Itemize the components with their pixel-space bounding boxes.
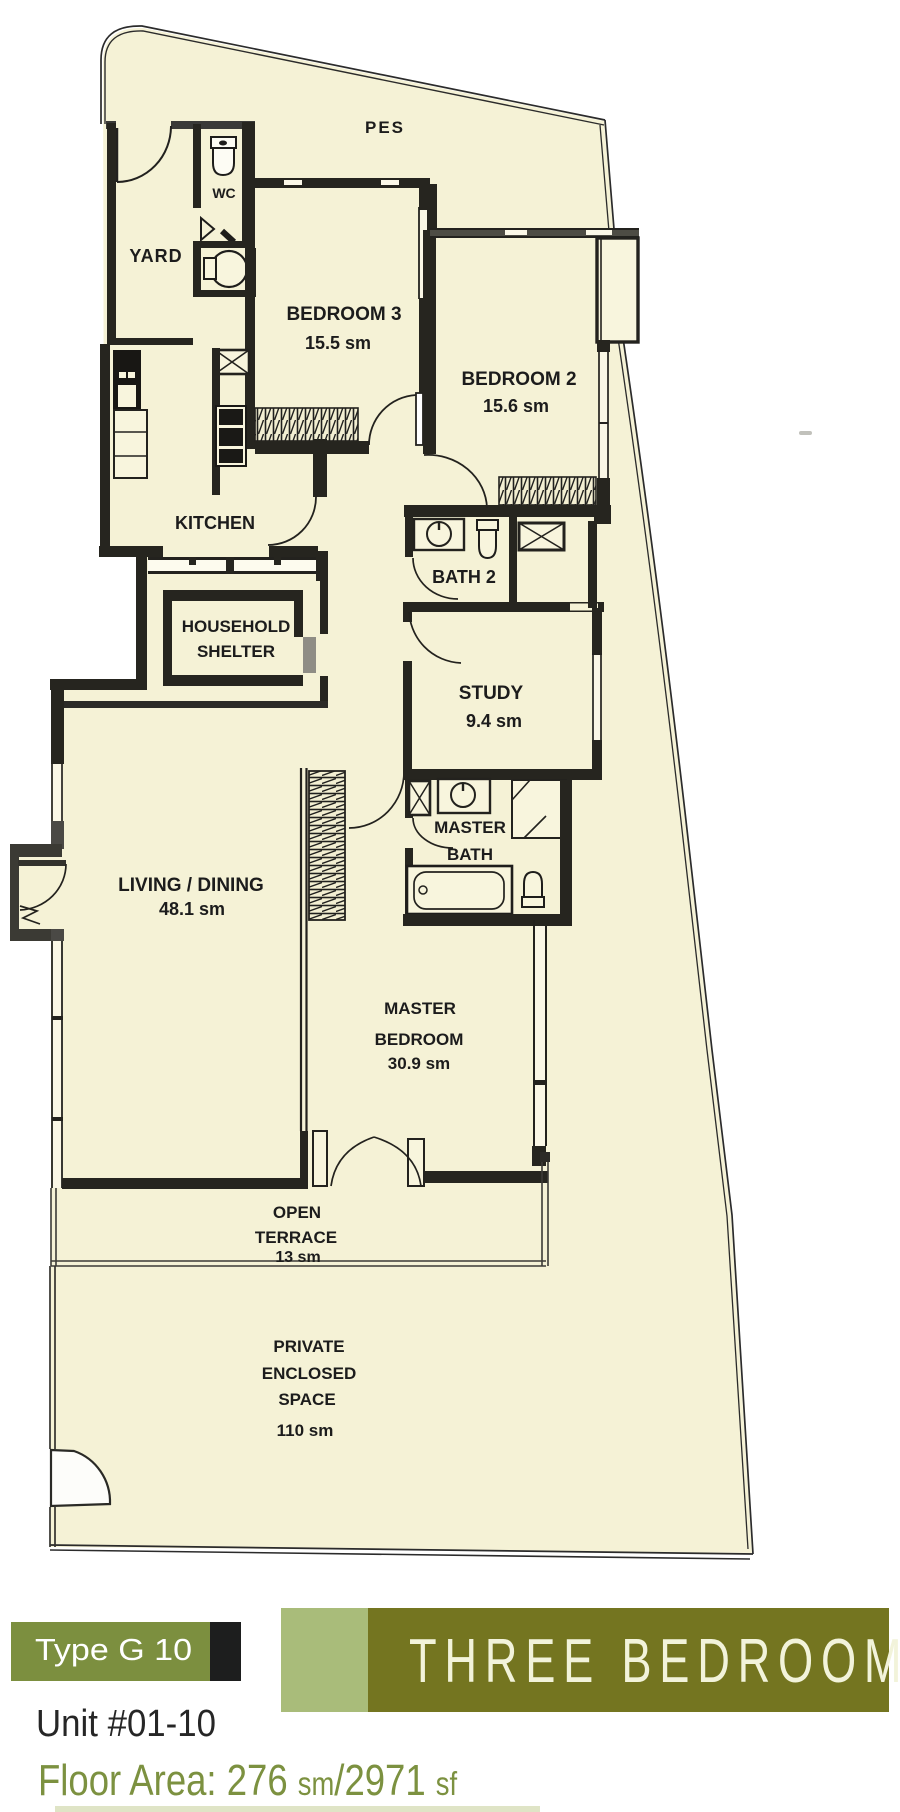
- svg-text:BATH: BATH: [447, 845, 493, 864]
- svg-text:Unit #01-10: Unit #01-10: [36, 1703, 216, 1745]
- svg-text:MASTER: MASTER: [434, 818, 506, 837]
- svg-text:OPEN: OPEN: [273, 1203, 321, 1222]
- svg-text:15.6 sm: 15.6 sm: [483, 396, 549, 416]
- svg-text:30.9 sm: 30.9 sm: [388, 1054, 450, 1073]
- svg-text:ENCLOSED: ENCLOSED: [262, 1364, 356, 1383]
- svg-text:LIVING / DINING: LIVING / DINING: [118, 875, 264, 896]
- svg-text:TERRACE: TERRACE: [255, 1228, 337, 1247]
- svg-text:MASTER: MASTER: [384, 999, 456, 1018]
- svg-text:PES: PES: [365, 118, 405, 137]
- svg-text:HOUSEHOLD: HOUSEHOLD: [182, 617, 291, 636]
- svg-text:Type G 10: Type G 10: [35, 1632, 192, 1667]
- svg-text:PRIVATE: PRIVATE: [273, 1337, 344, 1356]
- svg-text:THREE BEDROOM: THREE BEDROOM: [409, 1626, 900, 1696]
- svg-text:SHELTER: SHELTER: [197, 642, 275, 661]
- svg-text:15.5 sm: 15.5 sm: [305, 333, 371, 353]
- svg-text:9.4 sm: 9.4 sm: [466, 711, 522, 731]
- svg-text:BEDROOM 2: BEDROOM 2: [461, 369, 576, 390]
- svg-text:BATH 2: BATH 2: [432, 567, 496, 587]
- svg-text:BEDROOM 3: BEDROOM 3: [286, 304, 401, 325]
- svg-text:YARD: YARD: [129, 246, 182, 266]
- svg-text:48.1 sm: 48.1 sm: [159, 899, 225, 919]
- svg-text:SPACE: SPACE: [278, 1390, 335, 1409]
- svg-text:13 sm: 13 sm: [275, 1249, 320, 1266]
- svg-text:BEDROOM: BEDROOM: [375, 1030, 464, 1049]
- svg-text:KITCHEN: KITCHEN: [175, 513, 255, 533]
- svg-text:WC: WC: [212, 185, 235, 201]
- svg-text:STUDY: STUDY: [459, 683, 524, 704]
- svg-text:Floor Area: 276 sm/2971 sf: Floor Area: 276 sm/2971 sf: [38, 1755, 458, 1805]
- svg-text:110 sm: 110 sm: [277, 1421, 334, 1440]
